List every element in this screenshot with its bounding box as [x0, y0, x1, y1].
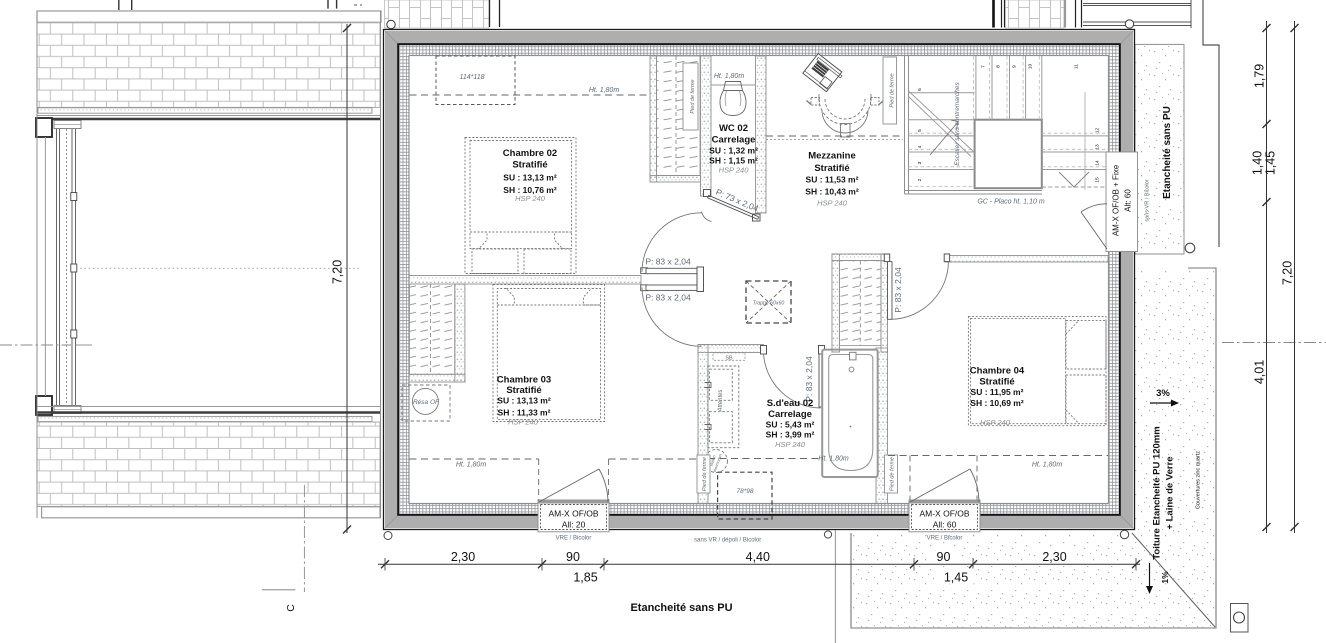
svg-text:2,30: 2,30 [451, 550, 475, 564]
svg-text:Toiture Etancheité PU 120mm: Toiture Etancheité PU 120mm [1152, 426, 1163, 559]
svg-text:2,30: 2,30 [1042, 550, 1066, 564]
svg-text:sans VR / dépoli / Bicolor: sans VR / dépoli / Bicolor [694, 538, 761, 544]
svg-text:114*118: 114*118 [459, 74, 484, 81]
svg-text:HSP 240: HSP 240 [775, 440, 806, 449]
svg-text:1,45: 1,45 [1264, 151, 1278, 175]
svg-text:Pied de ferme: Pied de ferme [890, 457, 896, 491]
svg-text:sans VR / Bicolor: sans VR / Bicolor [1145, 179, 1151, 221]
svg-text:Pied de ferme: Pied de ferme [890, 73, 896, 107]
svg-text:Escalier sans contremarches: Escalier sans contremarches [954, 82, 961, 166]
svg-text:Ht. 1,80m: Ht. 1,80m [456, 462, 487, 469]
svg-text:P: 83 x 2,04: P: 83 x 2,04 [804, 356, 814, 402]
svg-text:+ Laine de Verre: + Laine de Verre [1165, 456, 1176, 529]
svg-text:WC 02: WC 02 [719, 123, 748, 134]
svg-text:13: 13 [1095, 144, 1101, 150]
svg-text:1,40: 1,40 [1251, 151, 1265, 175]
svg-text:Chambre 02: Chambre 02 [503, 148, 557, 159]
svg-text:Ht. 1,80m: Ht. 1,80m [1032, 462, 1063, 469]
svg-text:Trappe 60x60: Trappe 60x60 [753, 301, 785, 307]
svg-text:Stratifié: Stratifié [814, 163, 849, 174]
svg-text:Stratifié: Stratifié [506, 385, 541, 396]
svg-text:Pied de ferme: Pied de ferme [702, 457, 708, 491]
svg-text:SU : 5,43 m²: SU : 5,43 m² [766, 420, 815, 430]
svg-text:HSP 240: HSP 240 [515, 194, 546, 203]
svg-text:2: 2 [917, 178, 923, 181]
svg-text:P: 83 x 2,04: P: 83 x 2,04 [893, 267, 903, 313]
svg-text:Chambre 04: Chambre 04 [970, 366, 1025, 377]
svg-text:1,45: 1,45 [944, 571, 968, 585]
svg-text:Ht. 1,80m: Ht. 1,80m [589, 87, 620, 94]
svg-text:7,20: 7,20 [1281, 261, 1295, 285]
svg-text:12: 12 [1095, 128, 1101, 134]
svg-text:8: 8 [996, 65, 1002, 68]
svg-text:90: 90 [937, 550, 951, 564]
svg-text:10: 10 [1028, 64, 1034, 70]
svg-text:SH : 11,33 m²: SH : 11,33 m² [498, 407, 551, 417]
svg-text:SH : 3,99 m²: SH : 3,99 m² [766, 429, 815, 439]
svg-text:P: 83 x 2,04: P: 83 x 2,04 [645, 293, 691, 303]
svg-text:SU : 13,13 m²: SU : 13,13 m² [503, 173, 557, 183]
svg-text:78*98: 78*98 [737, 488, 754, 495]
svg-text:AM-X OF/OB: AM-X OF/OB [919, 508, 969, 518]
svg-text:HSP 240: HSP 240 [980, 418, 1011, 427]
svg-text:15: 15 [1095, 177, 1101, 183]
svg-text:7: 7 [981, 65, 987, 68]
svg-text:VRE / Bicolor: VRE / Bicolor [927, 536, 963, 542]
svg-text:SU : 11,95 m²: SU : 11,95 m² [971, 387, 1024, 397]
svg-text:Couvertures zinc quartz: Couvertures zinc quartz [1196, 451, 1202, 509]
svg-text:Ht. 1,80m: Ht. 1,80m [714, 73, 745, 80]
svg-text:SH : 10,69 m²: SH : 10,69 m² [970, 398, 1024, 408]
svg-text:6: 6 [917, 88, 923, 91]
svg-text:Mezzanine: Mezzanine [808, 151, 856, 162]
svg-text:P: 83 x 2,04: P: 83 x 2,04 [645, 256, 691, 266]
svg-text:GC - Placo ht. 1,10 m: GC - Placo ht. 1,10 m [977, 199, 1044, 206]
svg-text:SU : 1,32 m²: SU : 1,32 m² [709, 146, 758, 156]
svg-text:14: 14 [1095, 160, 1101, 166]
svg-text:Carrelage: Carrelage [712, 135, 756, 146]
svg-text:4,40: 4,40 [746, 550, 770, 564]
svg-text:7,20: 7,20 [331, 260, 345, 284]
svg-text:3: 3 [917, 161, 923, 164]
svg-text:Alt: 60: Alt: 60 [1124, 189, 1133, 212]
svg-text:Chambre 03: Chambre 03 [497, 375, 551, 386]
svg-text:Résa OF: Résa OF [413, 399, 440, 406]
svg-text:S.d'eau 02: S.d'eau 02 [767, 398, 814, 409]
svg-text:Ht. 1,80m: Ht. 1,80m [818, 456, 849, 463]
svg-text:1,85: 1,85 [573, 571, 597, 585]
svg-text:Stratifié: Stratifié [979, 377, 1014, 388]
svg-text:All: 20: All: 20 [562, 520, 586, 530]
svg-text:HSP 240: HSP 240 [817, 198, 848, 207]
svg-text:HSP 240: HSP 240 [719, 166, 750, 175]
svg-text:11: 11 [1074, 64, 1080, 69]
svg-text:90: 90 [566, 550, 580, 564]
svg-text:SU : 13,13 m²: SU : 13,13 m² [497, 395, 551, 405]
svg-text:4,01: 4,01 [1253, 360, 1267, 384]
svg-text:Etancheité sans PU: Etancheité sans PU [630, 602, 732, 614]
svg-text:SU : 11,53 m²: SU : 11,53 m² [806, 174, 859, 184]
svg-text:Pied de ferme: Pied de ferme [690, 79, 696, 113]
svg-text:VRE / Bicolor: VRE / Bicolor [556, 536, 592, 542]
svg-text:AM-X OF/OB + Fixe: AM-X OF/OB + Fixe [1112, 164, 1121, 236]
svg-text:1,79: 1,79 [1253, 64, 1267, 88]
svg-text:C: C [285, 604, 297, 612]
svg-text:HSP 240: HSP 240 [508, 417, 539, 426]
svg-text:1%: 1% [1160, 571, 1170, 584]
svg-text:3%: 3% [1156, 388, 1170, 399]
svg-text:9: 9 [1012, 65, 1018, 68]
svg-text:5: 5 [917, 129, 923, 132]
svg-text:Carrelage: Carrelage [768, 409, 812, 420]
svg-text:Etancheité sans PU: Etancheité sans PU [1162, 106, 1173, 199]
svg-text:Stratifié: Stratifié [512, 160, 547, 171]
svg-text:SH : 10,43 m²: SH : 10,43 m² [805, 187, 859, 197]
svg-text:SB: SB [725, 356, 733, 362]
svg-text:AM-X OF/OB: AM-X OF/OB [548, 508, 598, 518]
svg-text:All: 60: All: 60 [933, 520, 957, 530]
svg-text:Attentes: Attentes [718, 389, 724, 412]
svg-text:SH : 1,15 m²: SH : 1,15 m² [709, 156, 758, 166]
svg-text:4: 4 [917, 145, 923, 148]
